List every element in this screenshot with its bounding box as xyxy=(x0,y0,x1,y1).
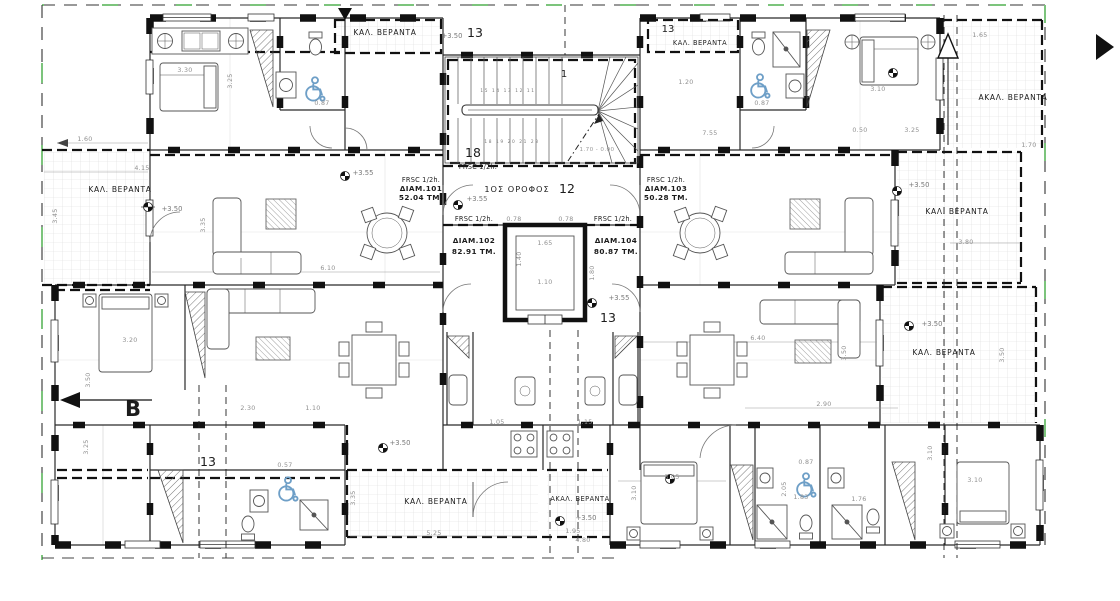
level-350-4: +3.50 xyxy=(576,514,597,522)
dim: 3.05 xyxy=(664,474,679,481)
bed-corner-bedroom xyxy=(940,462,1025,538)
apartment-103-area: 50.28 ΤΜ. xyxy=(644,193,688,202)
fire-rating-corridor-right: FRSC 1/2h. xyxy=(594,215,632,223)
coffee-table-104 xyxy=(795,340,831,363)
fire-rating-stair: FRSC 1/2h. xyxy=(459,163,497,171)
shower-bath1 xyxy=(757,505,787,539)
dim: 1.95 xyxy=(565,528,580,535)
dim: 4.15 xyxy=(134,165,149,172)
grid-13-top-right: 13 xyxy=(662,24,675,35)
veranda-label-right-lower: ΚΑΛ. ΒΕΡΑΝΤΑ xyxy=(912,348,975,357)
level-350-5: +3.50 xyxy=(909,181,930,189)
apartment-102-name: ΔΙΑΜ.102 xyxy=(453,236,495,245)
wheelchair-icon xyxy=(751,74,769,97)
grid-13-top-left: 13 xyxy=(467,25,483,40)
veranda-label-uncovered-top: ΑΚΑΛ. ΒΕΡΑΝΤΑ xyxy=(978,93,1047,102)
dim-door-left: 0.78 xyxy=(506,216,521,223)
dim: 3.10 xyxy=(927,445,934,460)
coffee-table-103 xyxy=(790,199,820,229)
bed-apartment-103 xyxy=(860,37,918,85)
veranda-label-uncovered-bottom: ΑΚΑΛ. ΒΕΡΑΝΤΑ xyxy=(550,495,609,503)
dim: 3.35 xyxy=(350,490,357,505)
level-350-2: +3.50 xyxy=(162,205,183,213)
dim: 3.50 xyxy=(85,372,92,387)
dim: 1.05 xyxy=(489,419,504,426)
dim: 1.20 xyxy=(678,79,693,86)
dim: 1.10 xyxy=(305,405,320,412)
grid-1: 1 xyxy=(561,69,567,80)
shower-103 xyxy=(773,32,800,67)
apartment-101-name: ΔΙΑΜ.101 xyxy=(400,184,442,193)
dim: 1.83 xyxy=(793,494,808,501)
dim: 1.10 xyxy=(537,279,552,286)
level-350-6: +3.50 xyxy=(922,320,943,328)
level-350-3: +3.50 xyxy=(390,439,411,447)
dining-table-101 xyxy=(360,206,414,259)
dim: 0.87 xyxy=(798,459,813,466)
dim: 3.50 xyxy=(841,345,848,360)
coffee-table-101 xyxy=(266,199,296,229)
level-355-1: +3.55 xyxy=(467,195,488,203)
dim: 3.45 xyxy=(52,208,59,223)
grid-12: 12 xyxy=(559,181,575,196)
toilet-bath1 xyxy=(800,515,813,539)
apartment-101-area: 52.04 ΤΜ. xyxy=(399,193,443,202)
shower-bath2 xyxy=(832,505,862,539)
dim-door-right: 0.78 xyxy=(558,216,573,223)
section-arrow-top-right xyxy=(1096,34,1114,60)
wardrobe-corner xyxy=(892,462,915,540)
dim: 5.25 xyxy=(426,530,441,537)
dim: 4.80 xyxy=(575,537,590,544)
coffee-table-102 xyxy=(256,337,290,360)
section-letter-b: B xyxy=(125,397,141,421)
apartment-103-fire-rating: FRSC 1/2h. xyxy=(647,176,685,184)
section-b-arrow xyxy=(60,392,80,408)
stair-direction-line xyxy=(568,114,599,161)
dim: 3.10 xyxy=(870,86,885,93)
dim: 2.90 xyxy=(816,401,831,408)
grid-13-bottom-left: 13 xyxy=(200,454,216,469)
dining-table-103 xyxy=(673,206,727,259)
washbasin-bottom-left xyxy=(250,490,268,512)
dim: 3.35 xyxy=(200,217,207,232)
floor-plan-svg: FRSC 1/2h. ΔΙΑΜ.101 52.04 ΤΜ. FRSC 1/2h.… xyxy=(0,0,1120,601)
toilet-103 xyxy=(752,32,765,55)
grid-13-center: 13 xyxy=(600,310,616,325)
dim: 1.65 xyxy=(537,240,552,247)
stair-level-note: 1.70 - 0.00 xyxy=(580,147,615,153)
wardrobe-102 xyxy=(185,292,205,378)
dim: 6.40 xyxy=(750,335,765,342)
floor-title: 1ΟΣ ΟΡΟΦΟΣ xyxy=(484,184,549,194)
dim: 6.10 xyxy=(320,265,335,272)
apartment-104-area: 80.87 ΤΜ. xyxy=(594,247,638,256)
washbasin-bath1 xyxy=(757,468,773,488)
toilet-101 xyxy=(309,32,322,55)
dim: 3.20 xyxy=(122,337,137,344)
veranda-label-top-right: ΚΑΛ. ΒΕΡΑΝΤΑ xyxy=(673,39,727,47)
dim: 0.57 xyxy=(277,462,292,469)
dim: 3.10 xyxy=(967,477,982,484)
wardrobe-bath-left xyxy=(158,470,183,543)
veranda-label-bottom: ΚΑΛ. ΒΕΡΑΝΤΑ xyxy=(404,497,467,506)
dim: 3.25 xyxy=(83,439,90,454)
dim: 3.10 xyxy=(631,485,638,500)
apartment-103-name: ΔΙΑΜ.103 xyxy=(645,184,687,193)
dim: 1.80 xyxy=(589,265,596,280)
dim: 2.30 xyxy=(240,405,255,412)
dim: 1.76 xyxy=(851,496,866,503)
dim: 3.25 xyxy=(904,127,919,134)
floor-plan-canvas: FRSC 1/2h. ΔΙΑΜ.101 52.04 ΤΜ. FRSC 1/2h.… xyxy=(0,0,1120,601)
dim: 3.50 xyxy=(999,347,1006,362)
wardrobe-104 xyxy=(731,465,753,540)
washbasin-bath2 xyxy=(828,468,844,488)
washbasin-101 xyxy=(276,72,296,98)
toilet-bottom-left xyxy=(242,516,255,540)
dim: 1.15 xyxy=(577,419,592,426)
apartment-102-area: 82.91 ΤΜ. xyxy=(452,247,496,256)
dim: 0.87 xyxy=(754,100,769,107)
dim: 3.80 xyxy=(958,239,973,246)
wardrobe-101 xyxy=(250,30,273,107)
dim: 1.40 xyxy=(516,251,523,266)
dim: 3.25 xyxy=(227,73,234,88)
apartment-104-name: ΔΙΑΜ.104 xyxy=(595,236,637,245)
dim: 1.70 xyxy=(1021,142,1036,149)
fire-rating-corridor-left: FRSC 1/2h. xyxy=(455,215,493,223)
dim: 1.65 xyxy=(972,32,987,39)
toilet-bath2 xyxy=(867,509,880,533)
wheelchair-icon xyxy=(306,77,324,100)
veranda-label-right-upper: ΚΑΛ. ΒΕΡΑΝΤΑ xyxy=(925,207,988,216)
dim: 7.55 xyxy=(702,130,717,137)
stair-treads-upper: 15 14 13 12 11 xyxy=(480,88,535,94)
dim: 0.50 xyxy=(852,127,867,134)
level-355-3: +3.55 xyxy=(353,169,374,177)
washbasin-103 xyxy=(786,74,804,98)
dim: 1.60 xyxy=(77,136,92,143)
kitchen-corner-right xyxy=(615,336,637,358)
shower-bottom-left xyxy=(300,500,328,530)
dim: 2.05 xyxy=(781,481,788,496)
dim: 3.30 xyxy=(177,67,192,74)
veranda-label-top-left: ΚΑΛ. ΒΕΡΑΝΤΑ xyxy=(353,28,416,37)
level-355-2: +3.55 xyxy=(609,294,630,302)
wheelchair-icon xyxy=(279,477,297,500)
veranda-label-left: ΚΑΛ. ΒΕΡΑΝΤΑ xyxy=(88,185,151,194)
stair-treads-lower: 18 19 20 21 23 xyxy=(484,139,539,145)
kitchen-101 xyxy=(152,28,248,54)
grid-18: 18 xyxy=(465,145,481,160)
dim: 0.87 xyxy=(314,100,329,107)
level-350-1: +3.50 xyxy=(442,32,463,40)
apartment-101-fire-rating: FRSC 1/2h. xyxy=(402,176,440,184)
wardrobe-103 xyxy=(807,30,830,107)
kitchen-corner-left xyxy=(447,336,469,358)
